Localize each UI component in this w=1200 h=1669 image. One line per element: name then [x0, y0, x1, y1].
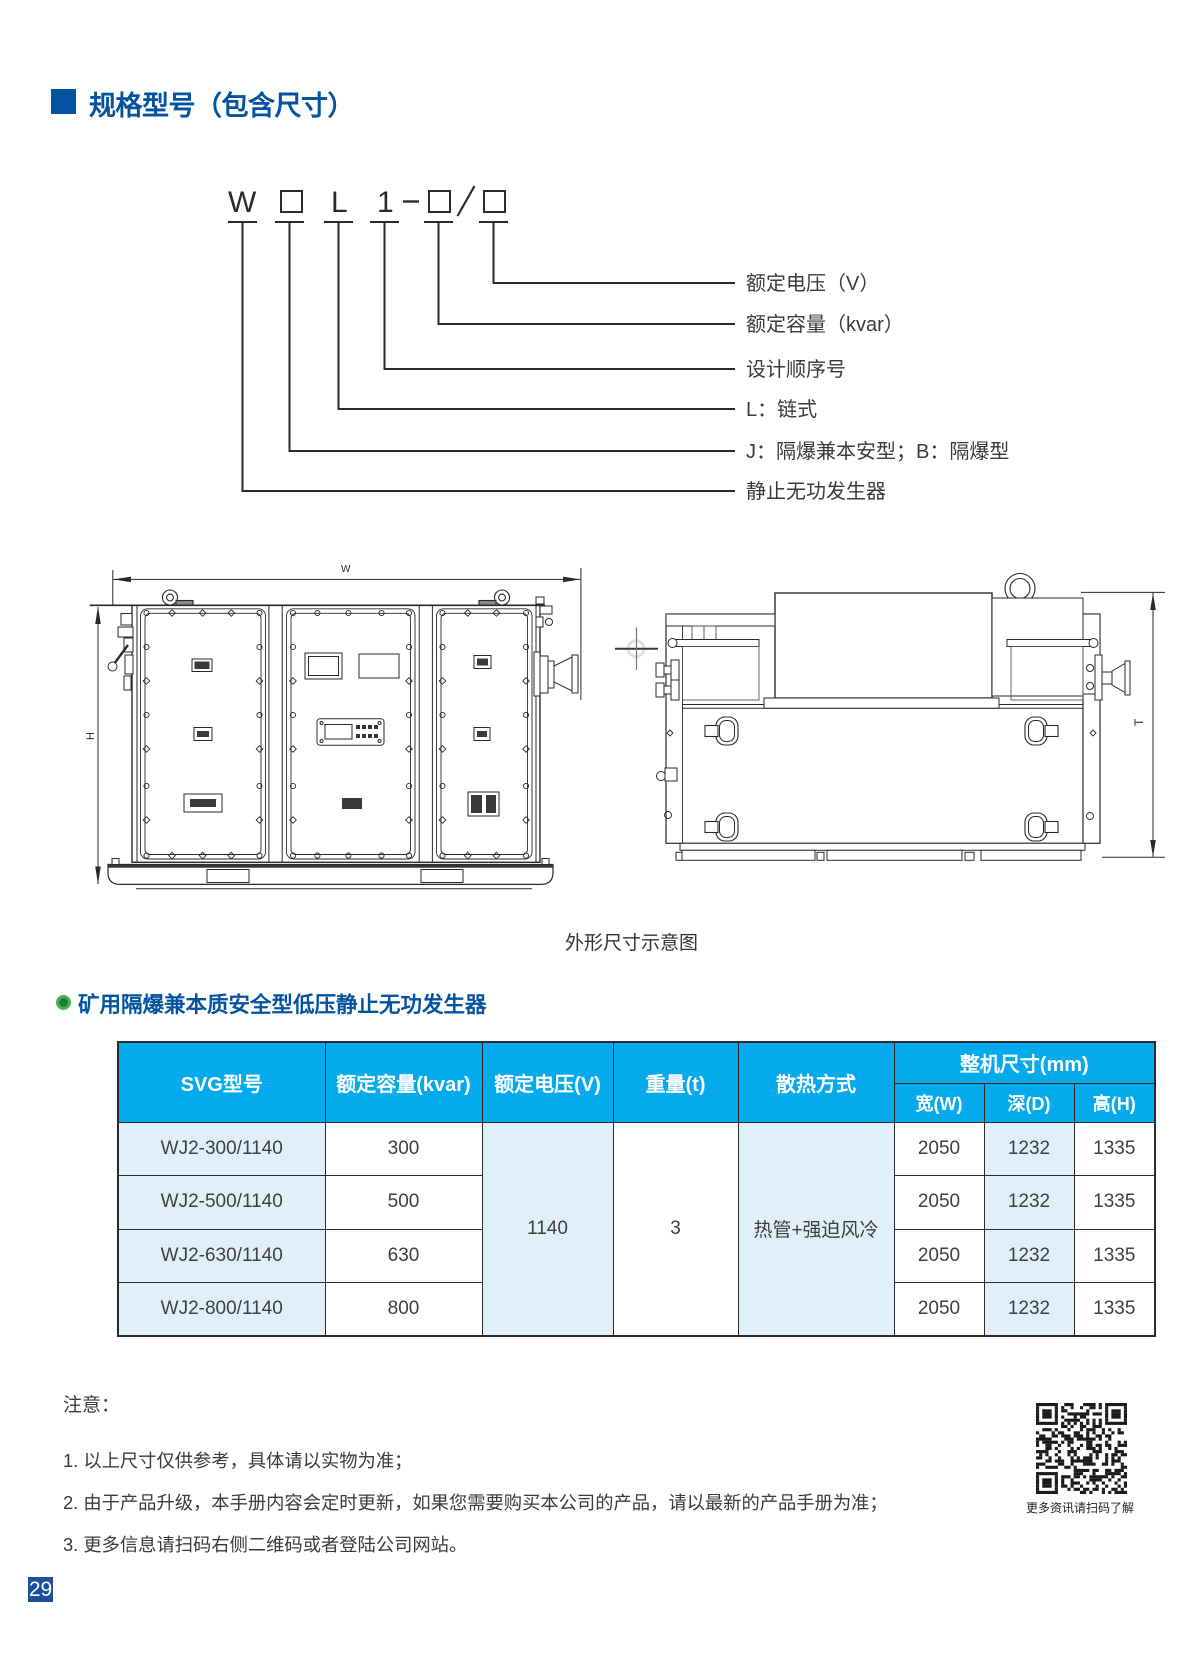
svg-text:额定容量（kvar）: 额定容量（kvar）	[746, 313, 904, 336]
svg-text:W: W	[341, 564, 351, 575]
svg-text:设计顺序号: 设计顺序号	[746, 358, 846, 381]
svg-text:H: H	[85, 732, 97, 740]
svg-text:静止无功发生器: 静止无功发生器	[746, 480, 886, 503]
svg-text:L: L	[331, 186, 348, 219]
svg-text:T: T	[1132, 718, 1146, 726]
svg-text:额定电压（V）: 额定电压（V）	[746, 272, 879, 295]
svg-text:L：链式: L：链式	[746, 398, 817, 421]
svg-text:1: 1	[377, 186, 394, 219]
svg-text:W: W	[228, 186, 257, 219]
svg-text:J：隔爆兼本安型；B：隔爆型: J：隔爆兼本安型；B：隔爆型	[746, 440, 1009, 463]
